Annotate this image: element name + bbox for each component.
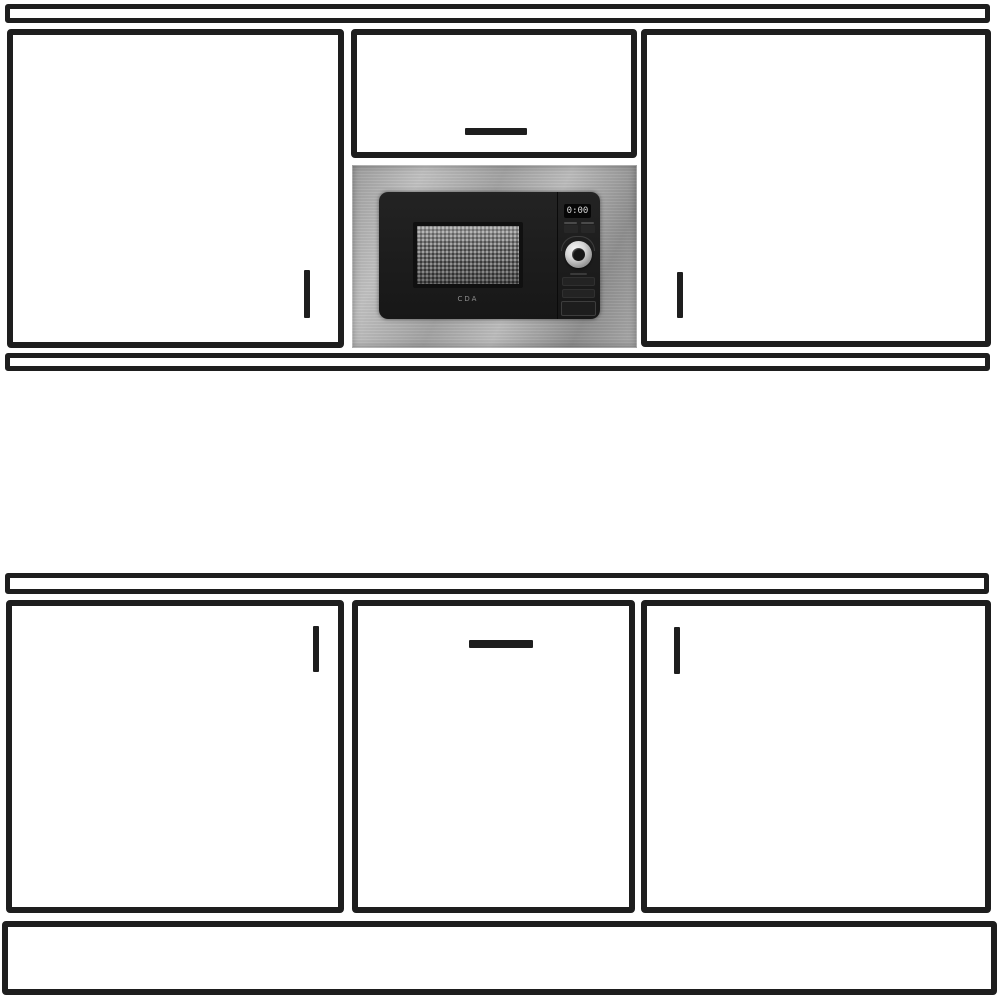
plinth-panel	[2, 921, 997, 995]
button-label	[581, 222, 594, 224]
cornice-rail	[5, 4, 990, 23]
microwave-window	[413, 222, 523, 288]
stop-button	[581, 225, 595, 233]
kitchen-elevation-diagram: CDA 0:00	[0, 0, 1000, 1000]
button-label	[570, 273, 587, 275]
pelmet-rail	[5, 353, 990, 371]
program-button	[564, 225, 578, 233]
door-handle	[465, 128, 527, 135]
weight-button	[562, 289, 595, 298]
door-handle	[313, 626, 319, 672]
worktop-rail	[5, 573, 989, 594]
door-handle	[674, 627, 680, 674]
door-handle	[677, 272, 683, 318]
door-handle	[469, 640, 533, 648]
base-cabinet-right	[641, 600, 991, 913]
button-label	[564, 222, 577, 224]
built-in-microwave: CDA 0:00	[352, 165, 637, 348]
door-open-button	[561, 301, 596, 316]
microwave-display: 0:00	[564, 204, 591, 218]
door-handle	[304, 270, 310, 318]
base-cabinet-left	[6, 600, 344, 913]
top-box-cabinet	[351, 29, 637, 158]
rotary-knob-icon	[565, 241, 592, 268]
time-button	[562, 277, 595, 286]
microwave-door: CDA 0:00	[379, 192, 600, 319]
wall-cabinet-left	[7, 29, 344, 348]
microwave-control-panel: 0:00	[558, 192, 600, 319]
wall-cabinet-right	[641, 29, 991, 347]
base-cabinet-middle	[352, 600, 635, 913]
microwave-brand-logo: CDA	[423, 295, 513, 303]
